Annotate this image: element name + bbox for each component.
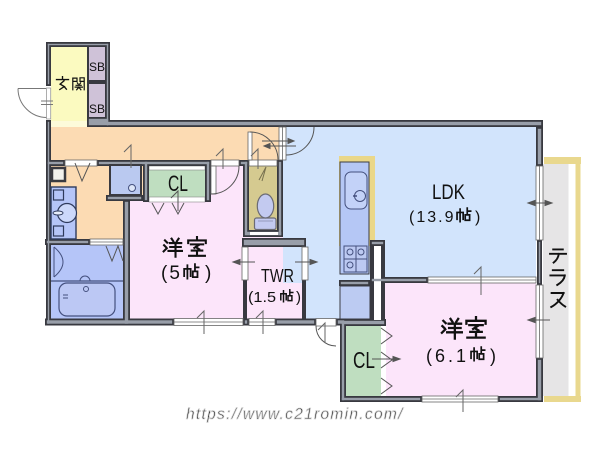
svg-text:): ) [475, 209, 480, 226]
svg-text:SB: SB [89, 60, 105, 74]
svg-text:): ) [296, 289, 301, 306]
svg-text:CL: CL [353, 347, 375, 373]
svg-text:): ) [490, 346, 496, 366]
svg-text:(6.1: (6.1 [426, 346, 469, 366]
svg-text:(13.9: (13.9 [409, 209, 455, 226]
svg-text:): ) [205, 263, 211, 284]
svg-text:https://www.c21romin.com/: https://www.c21romin.com/ [186, 406, 404, 423]
svg-text:CL: CL [168, 171, 188, 196]
svg-text:(1.5: (1.5 [248, 289, 276, 306]
svg-text:(5: (5 [161, 263, 182, 284]
svg-text:LDK: LDK [432, 181, 465, 204]
svg-text:TWR: TWR [261, 266, 294, 286]
svg-text:SB: SB [89, 102, 105, 116]
